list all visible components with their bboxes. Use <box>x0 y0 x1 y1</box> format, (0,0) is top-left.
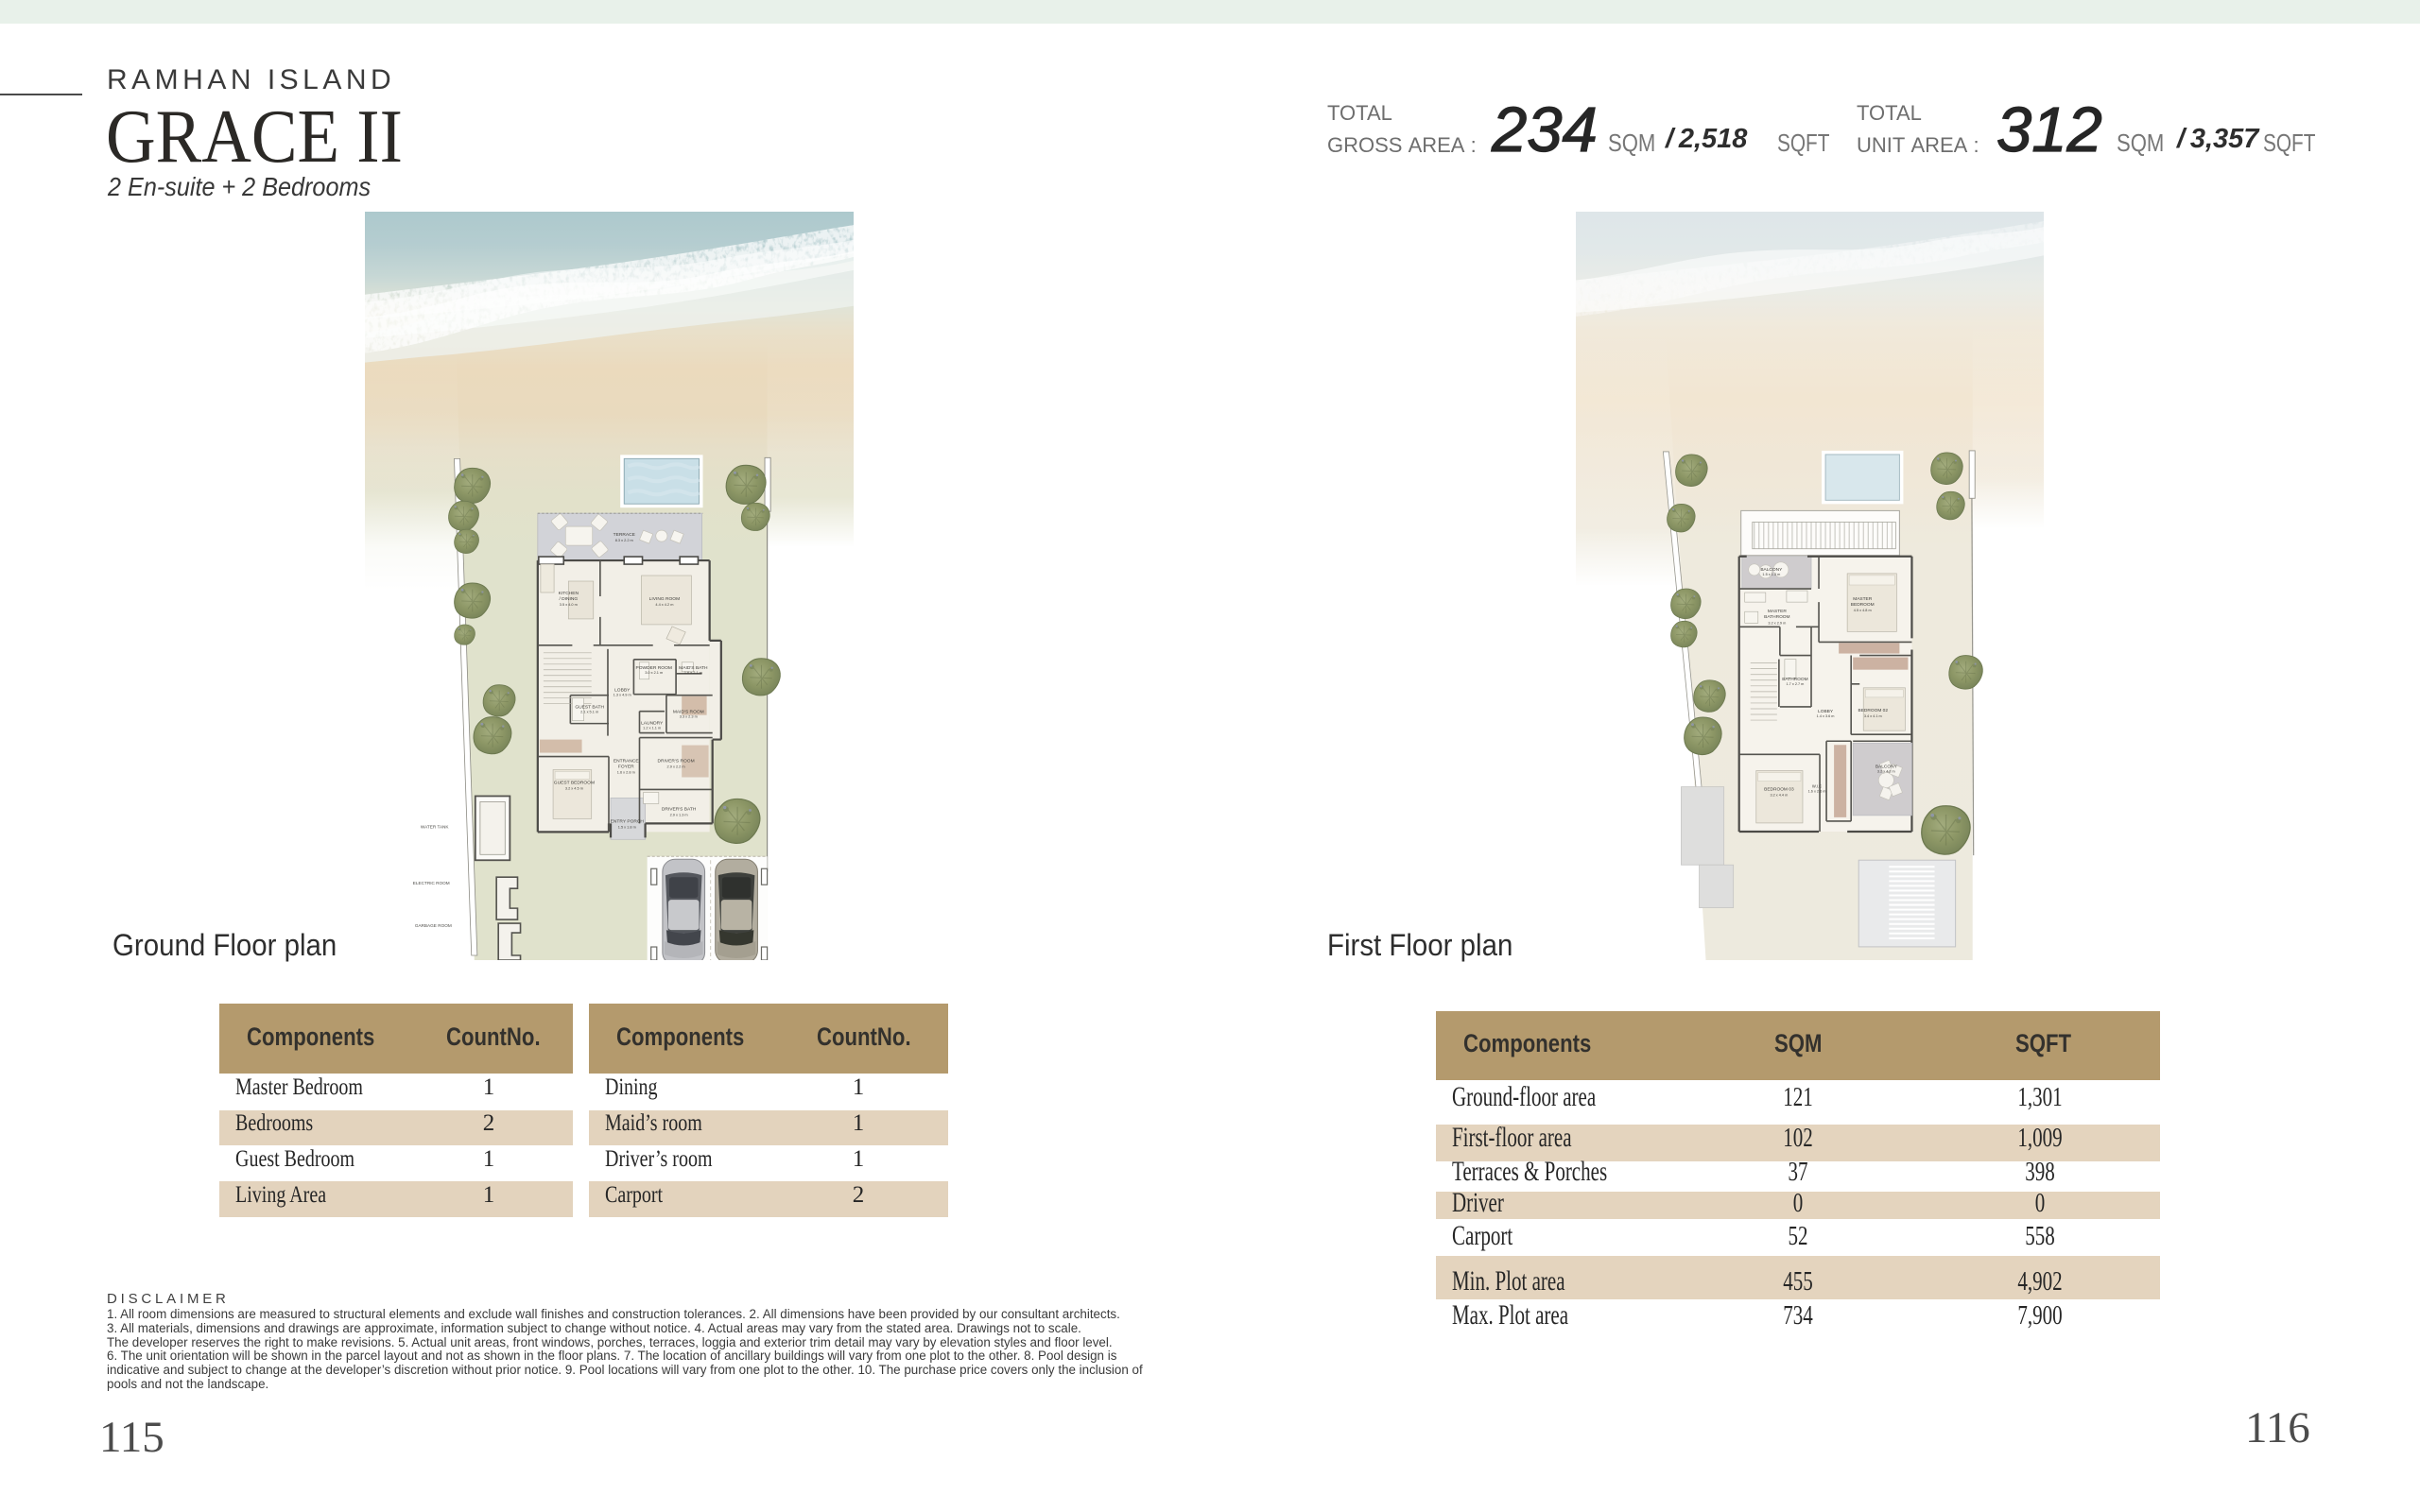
svg-text:KITCHEN: KITCHEN <box>559 591 579 596</box>
svg-text:ENTRANCE: ENTRANCE <box>614 759 640 765</box>
svg-text:WATER TANK: WATER TANK <box>421 824 450 829</box>
svg-text:1.2 x 1.1 m: 1.2 x 1.1 m <box>643 727 661 730</box>
svg-text:/ DINING: / DINING <box>559 596 578 602</box>
svg-text:ELECTRIC ROOM: ELECTRIC ROOM <box>413 881 450 885</box>
svg-text:3.0 x 2.1 m: 3.0 x 2.1 m <box>645 671 663 675</box>
svg-text:MASTER: MASTER <box>1768 609 1788 614</box>
svg-text:3.3 x 2.3 m: 3.3 x 2.3 m <box>680 715 698 719</box>
svg-text:3.2 x 4.5 m: 3.2 x 4.5 m <box>565 786 583 790</box>
svg-text:BATHROOM: BATHROOM <box>1764 614 1789 620</box>
svg-text:3.5 x 4.0 m: 3.5 x 4.0 m <box>560 603 578 607</box>
svg-text:W.I.C: W.I.C <box>1812 784 1822 789</box>
svg-text:4.4 x 4.2 m: 4.4 x 4.2 m <box>655 603 673 607</box>
svg-text:BEDROOM 03: BEDROOM 03 <box>1764 787 1794 793</box>
svg-text:1.5 x 1.3 m: 1.5 x 1.3 m <box>1762 573 1780 576</box>
svg-text:1.3 x 4.9 m: 1.3 x 4.9 m <box>614 694 631 697</box>
svg-text:3.2 x 2.9 m: 3.2 x 2.9 m <box>1768 621 1786 625</box>
svg-text:1.7 x 2.7 m: 1.7 x 2.7 m <box>1787 682 1805 686</box>
svg-text:2.1 x 5.1 m: 2.1 x 5.1 m <box>580 711 598 714</box>
svg-text:BEDROOM 02: BEDROOM 02 <box>1858 708 1889 713</box>
svg-text:GARBAGE ROOM: GARBAGE ROOM <box>415 923 452 928</box>
svg-text:1.6 x 2.1 m: 1.6 x 2.1 m <box>684 671 702 675</box>
svg-text:1.6 x 2.8 m: 1.6 x 2.8 m <box>617 771 635 775</box>
svg-text:3.4 x 4.1 m: 3.4 x 4.1 m <box>1864 714 1882 718</box>
svg-text:4.5 x 4.8 m: 4.5 x 4.8 m <box>1854 609 1872 612</box>
svg-text:3.2 x 4.4 m: 3.2 x 4.4 m <box>1770 794 1788 798</box>
svg-text:1.6 x 2.6 m: 1.6 x 2.6 m <box>1808 790 1826 794</box>
svg-text:DRIVER'S ROOM: DRIVER'S ROOM <box>658 759 695 765</box>
svg-text:LIVING ROOM: LIVING ROOM <box>649 596 680 602</box>
svg-text:DRIVER'S BATH: DRIVER'S BATH <box>662 806 697 812</box>
svg-text:1.4 x 3.6 m: 1.4 x 3.6 m <box>1817 714 1835 718</box>
svg-text:GUEST BEDROOM: GUEST BEDROOM <box>554 781 595 786</box>
svg-text:FOYER: FOYER <box>618 765 634 770</box>
svg-text:8.3 x 2.2 m: 8.3 x 2.2 m <box>615 539 633 542</box>
svg-text:3.2 x 4.2 m: 3.2 x 4.2 m <box>1877 769 1895 773</box>
svg-text:BEDROOM: BEDROOM <box>1851 602 1875 608</box>
svg-text:2.9 x 1.3 m: 2.9 x 1.3 m <box>670 813 688 816</box>
svg-text:1.5 x 1.8 m: 1.5 x 1.8 m <box>618 825 636 829</box>
svg-text:ENTRY PORCH: ENTRY PORCH <box>611 818 645 824</box>
svg-text:2.9 x 2.2 m: 2.9 x 2.2 m <box>667 765 685 769</box>
svg-text:TERRACE: TERRACE <box>614 532 636 538</box>
svg-text:MASTER: MASTER <box>1853 596 1873 602</box>
